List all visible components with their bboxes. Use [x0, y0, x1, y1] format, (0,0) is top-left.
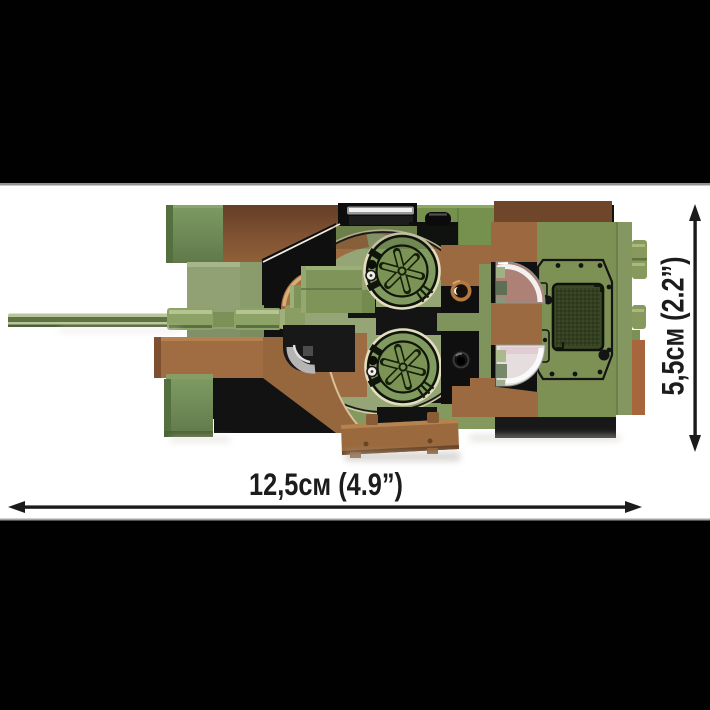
svg-text:12,5см (4.9”): 12,5см (4.9”)	[249, 466, 403, 502]
svg-text:5,5см (2.2”): 5,5см (2.2”)	[655, 257, 691, 396]
